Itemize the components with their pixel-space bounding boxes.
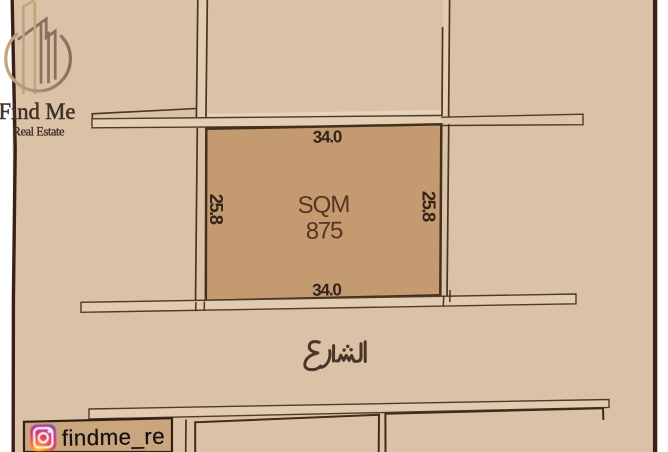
svg-text:25.8: 25.8 [206, 194, 227, 225]
svg-text:25.8: 25.8 [419, 191, 440, 222]
svg-text:875: 875 [306, 217, 344, 245]
svg-text:SQM: SQM [297, 191, 349, 219]
svg-text:Find Me: Find Me [0, 99, 75, 124]
svg-text:findme_re: findme_re [62, 424, 166, 451]
svg-text:Real Estate: Real Estate [13, 125, 65, 139]
svg-text:34.0: 34.0 [313, 127, 342, 147]
svg-text:34.0: 34.0 [312, 280, 341, 300]
